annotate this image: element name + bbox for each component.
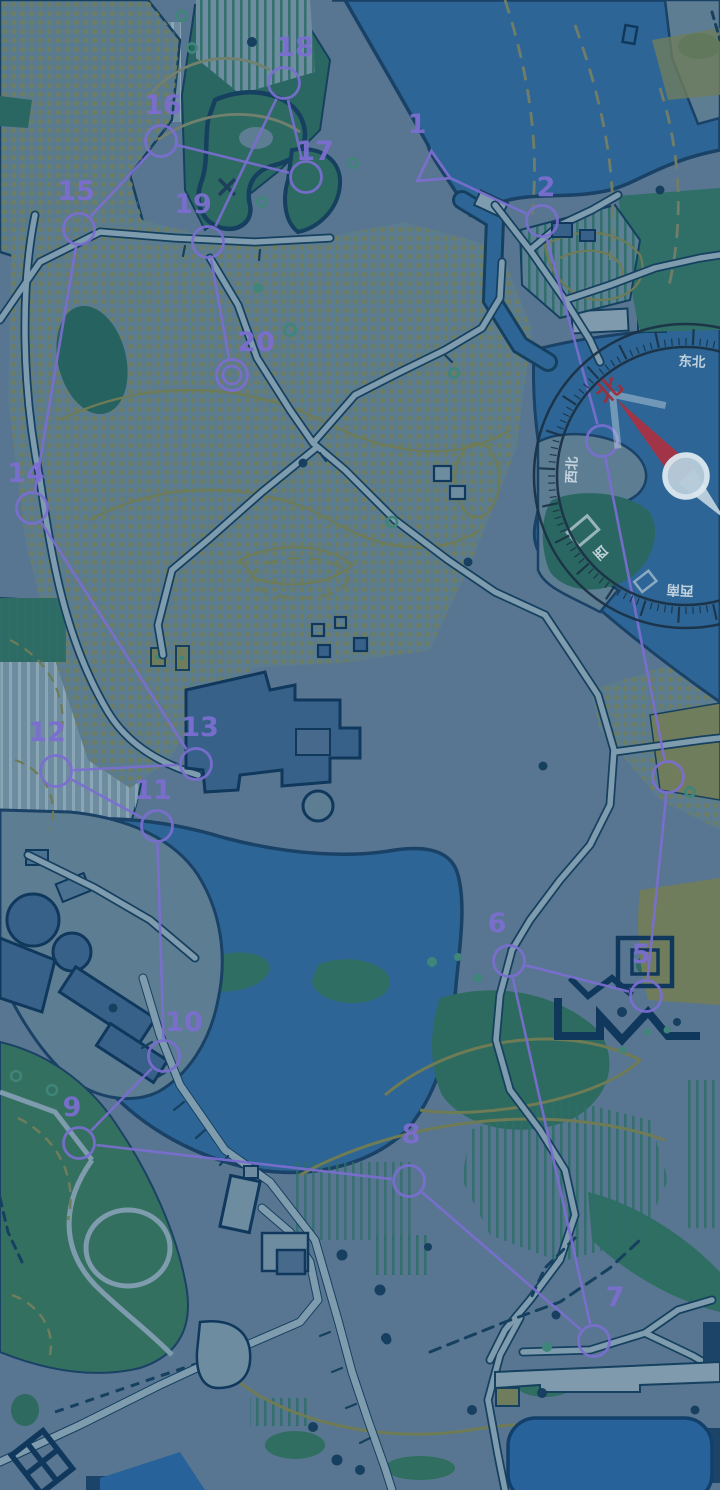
compass-label: 东北 xyxy=(678,353,706,371)
control-number: 5 xyxy=(632,939,651,970)
tank-building xyxy=(7,894,59,946)
control-number: 12 xyxy=(28,717,66,748)
control-number: 18 xyxy=(276,32,314,63)
compass-label: 西南 xyxy=(666,581,694,599)
control-number: 17 xyxy=(296,136,334,167)
control-number: 9 xyxy=(63,1092,82,1123)
control-number: 8 xyxy=(402,1119,421,1150)
control-number: 7 xyxy=(606,1282,625,1313)
control-number: 2 xyxy=(537,172,556,203)
control-number: 19 xyxy=(174,189,212,220)
tank-building xyxy=(53,933,91,971)
control-number: 20 xyxy=(237,327,275,358)
pool xyxy=(508,1418,712,1490)
control-number: 13 xyxy=(181,712,219,743)
control-number: 16 xyxy=(144,90,182,121)
game-map-screen[interactable]: 12567891011121314151617181920 北东北西北西西南 xyxy=(0,0,720,1490)
control-number: 6 xyxy=(488,908,507,939)
control-number: 14 xyxy=(7,458,45,489)
compass-label: 西北 xyxy=(564,456,581,484)
control-number: 1 xyxy=(408,109,427,140)
control-number: 10 xyxy=(165,1007,203,1038)
control-number: 15 xyxy=(57,176,95,207)
fountain xyxy=(303,791,333,821)
control-number: 11 xyxy=(134,775,172,806)
terrain-map[interactable]: 12567891011121314151617181920 北东北西北西西南 xyxy=(0,0,720,1490)
